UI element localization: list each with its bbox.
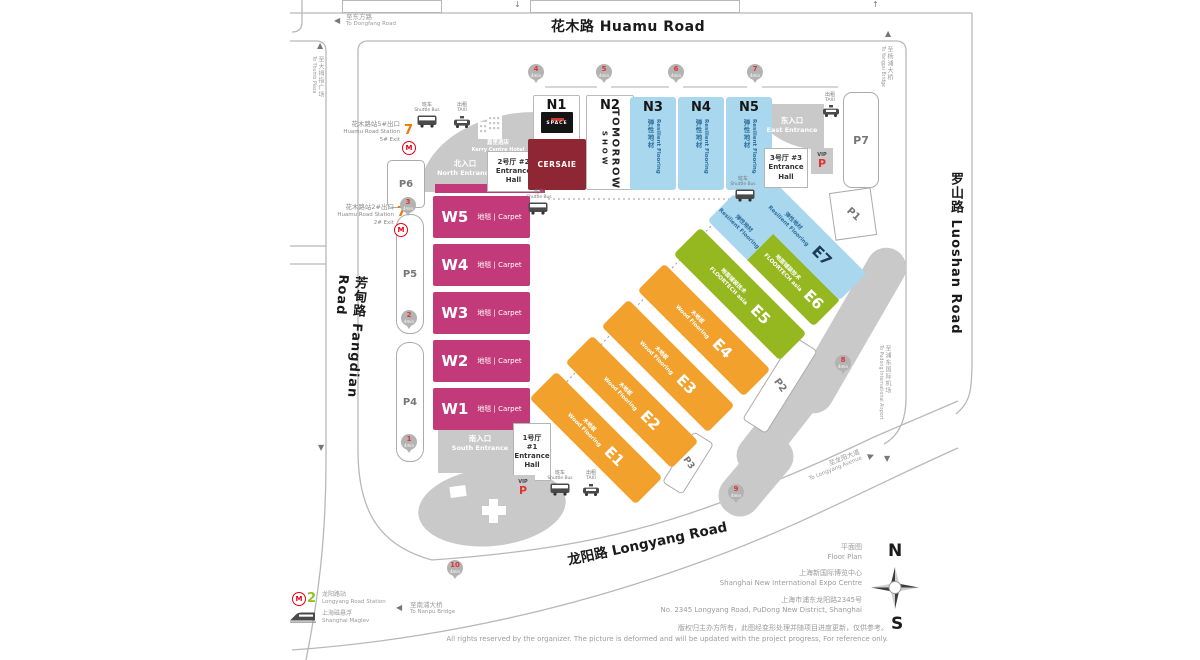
station-huamu-exit2: 花木路站2#出口 Huamu Road Station 2# Exit [298,203,394,228]
maglev-label: 上海磁悬浮 Shanghai Maglev [322,610,369,626]
gate-pin-7: 74min [747,64,763,80]
taxi-icon [453,116,471,128]
floor-plan-map: ↓ ↑ 花木路 Huamu Road 芳甸路 Fangdian Road 罗山路… [0,0,1200,660]
direction-pudong-airport: 至浦东国际机场 To Pudong International Airport [878,345,892,453]
floor-plan-title-zh: 平面图 [560,542,862,552]
taxi-icon [582,484,600,496]
direction-nanpu-bridge: 至南浦大桥 To Nanpu Bridge [410,601,455,616]
side-street-lines [290,246,326,264]
maglev-train-icon [290,612,316,623]
station-longyang: 龙阳路站 Longyang Road Station [322,591,386,607]
compass-south-label: S [891,616,903,633]
gate-pin-8: 84min [835,355,851,371]
left-arrow-icon: ◀ [396,604,402,612]
hall-w3: W3地毯 | Carpet [433,292,530,334]
n2-tomorrow-show-logo: TOMORROW SHOW [586,110,634,188]
venue-address-en: No. 2345 Longyang Road, PuDong New Distr… [560,605,862,615]
metro-line-2-number: 2 [307,592,316,605]
parking-p7: P7 [843,92,879,188]
taxi-label: 出租 TAXI [577,470,605,482]
up-arrow-icon: ↑ [872,1,879,9]
bus-icon [550,483,570,496]
hall-n4: N4 弹性地材Resilient Flooring [678,97,724,190]
station-huamu-exit5: 花木路站5#出口 Huamu Road Station 5# Exit [300,120,400,145]
direction-thumb-plaza: 至大拇指广场 To Thumb Plaza [311,56,325,126]
corner-street-line [292,0,302,32]
gate-pin-10: 104min [447,560,463,576]
building-small [449,485,466,498]
hotel-building-icon [478,113,504,139]
taxi-icon [822,105,840,117]
gate-pin-4: 44min [528,64,544,80]
down-arrow-icon: ▼ [884,455,890,463]
gate-pin-1: 14min [401,434,417,450]
direction-dongfang: 至东方路 To Dongfang Road [346,13,396,28]
metro-line-7-number: 7 [404,124,413,137]
disclaimer-en: All rights reserved by the organizer. Th… [400,634,888,645]
bus-icon [528,202,548,215]
hall-n3: N3 弹性地材Resilient Flooring [630,97,676,190]
gate-pin-6: 64min [668,64,684,80]
gate-pin-9: 94min [728,484,744,500]
vip-parking-east: VIP P [811,148,833,174]
vip-parking-south: VIP P [511,475,535,501]
disclaimer: 版权归主办方所有，此图经变形处理并随项目进度更新，仅供参考。 All right… [400,623,888,645]
shuttle-bus-label: 班车 Shuttle Bus [410,102,444,114]
up-arrow-icon: ▲ [885,30,891,38]
direction-yangpu-bridge: 至杨浦大桥 To Yangpu Bridge [880,46,894,112]
shuttle-bus-label: 班车 Shuttle Bus [543,470,577,482]
compass-rose-icon [871,565,919,611]
shuttle-bus-label: 班车 Shuttle Bus [522,189,556,201]
metro-logo-icon: M [292,592,306,606]
n1-space-badge: SPACE [541,112,573,133]
parking-p1: P1 [829,187,877,240]
footer-info: 平面图 Floor Plan 上海新国际博览中心 Shanghai New In… [560,542,862,615]
venue-address-zh: 上海市浦东龙阳路2345号 [560,595,862,605]
east-entrance-label: 东入口 East Entrance [762,116,822,134]
south-entrance-label: 南入口 South Entrance [440,434,520,452]
bus-icon [417,115,437,128]
gate-pin-3: 34min [400,197,416,213]
gate-pin-5: 54min [596,64,612,80]
roadside-block [342,0,442,13]
left-arrow-icon: ◀ [334,17,340,25]
entrance-hall-3: 3号厅 #3 Entrance Hall [764,148,808,188]
road-label-luoshan: 罗山路 Luoshan Road [946,172,965,337]
down-arrow-icon: ↓ [514,1,521,9]
gate-pin-2: 24min [401,310,417,326]
hall-w2: W2地毯 | Carpet [433,340,530,382]
building-cross-v [489,499,498,523]
compass-north-label: N [888,543,902,560]
roadside-block [530,0,740,13]
taxi-label: 出租 TAXI [448,102,476,114]
metro-logo-icon: M [402,141,416,155]
road-label-huamu: 花木路 Huamu Road [528,16,728,36]
hall-w4: W4地毯 | Carpet [433,244,530,286]
shuttle-bus-label: 班车 Shuttle Bus [726,176,760,188]
venue-name-zh: 上海新国际博览中心 [560,568,862,578]
disclaimer-zh: 版权归主办方所有，此图经变形处理并随项目进度更新，仅供参考。 [400,623,888,634]
hall-w5: W5地毯 | Carpet [433,196,530,238]
taxi-label: 出租 TAXI [816,92,844,104]
metro-logo-icon: M [394,223,408,237]
n1-cersaie-box: CERSAIE [528,139,586,190]
down-arrow-icon: ▼ [318,444,324,452]
bus-icon [735,189,755,202]
floor-plan-title-en: Floor Plan [560,552,862,562]
venue-name-en: Shanghai New International Expo Centre [560,578,862,588]
up-arrow-icon: ▲ [317,42,323,50]
